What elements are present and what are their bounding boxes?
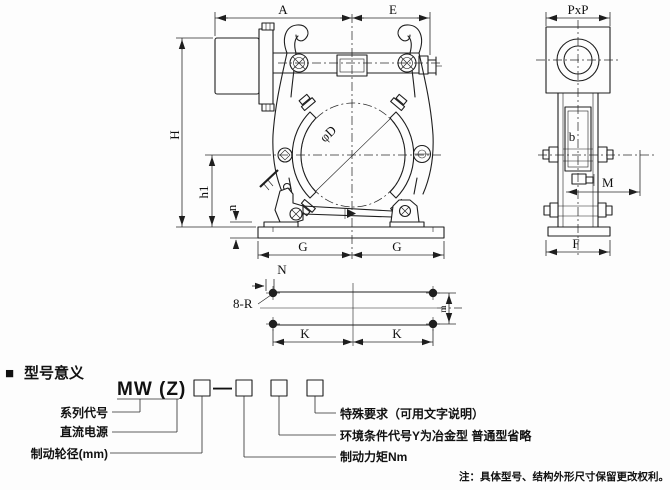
plan-view: N 8-R K K m xyxy=(233,262,462,346)
code-box-2 xyxy=(236,380,252,396)
dim-label-m: M xyxy=(602,175,614,190)
base-plate xyxy=(258,227,444,238)
dim-label-h1: h1 xyxy=(196,186,211,199)
dim-label-plan-m: m xyxy=(438,305,448,312)
dim-label-g-right: G xyxy=(392,239,401,254)
code-box-3 xyxy=(271,380,287,396)
dim-label-a: A xyxy=(278,2,288,17)
section-marker-icon: ■ xyxy=(5,365,14,382)
dim-label-k-left: K xyxy=(300,326,310,341)
magnet-mounting-plate xyxy=(259,29,273,104)
side-base-flange xyxy=(548,227,610,236)
dim-label-b: b xyxy=(569,129,576,144)
dim-label-f: F xyxy=(572,236,579,251)
electromagnet-body xyxy=(215,38,259,94)
holes-count-label: 8-R xyxy=(233,296,253,311)
model-prefix: MW (Z) xyxy=(117,379,186,400)
dim-label-e: E xyxy=(389,2,397,17)
code-box-4 xyxy=(307,380,323,396)
label-series-code: 系列代号 xyxy=(60,405,108,420)
dim-label-pxp: PxP xyxy=(568,2,589,17)
dim-label-plan-n: N xyxy=(277,262,287,277)
code-box-1 xyxy=(194,380,210,396)
label-dc-power: 直流电源 xyxy=(60,424,108,439)
section-title: 型号意义 xyxy=(24,364,84,382)
brake-technical-drawing: φD A E H h1 n xyxy=(0,0,670,490)
side-view: b PxP M F xyxy=(536,2,654,257)
model-code-diagram: ■ 型号意义 MW (Z) — 系列代号 直流电源 制动轮径(mm) 特殊要求（… xyxy=(5,364,669,483)
dim-label-n: n xyxy=(224,204,239,211)
label-special-requirements: 特殊要求（可用文字说明） xyxy=(340,406,484,421)
footer-note: 注：具体型号、结构外形尺寸保留更改权利。 xyxy=(459,470,669,483)
brake-drawing-page: φD A E H h1 n xyxy=(0,0,670,490)
label-wheel-diameter: 制动轮径(mm) xyxy=(31,446,108,461)
code-dash: — xyxy=(213,378,233,399)
dim-label-g-left: G xyxy=(298,239,307,254)
label-braking-torque: 制动力矩Nm xyxy=(340,449,407,464)
drum-diameter-label: φD xyxy=(317,122,340,145)
dim-label-h: H xyxy=(167,130,182,139)
label-environment-code: 环境条件代号Y为冶金型 普通型省略 xyxy=(340,428,532,443)
front-view: φD A E H h1 n xyxy=(167,2,444,259)
dim-label-k-right: K xyxy=(392,326,402,341)
